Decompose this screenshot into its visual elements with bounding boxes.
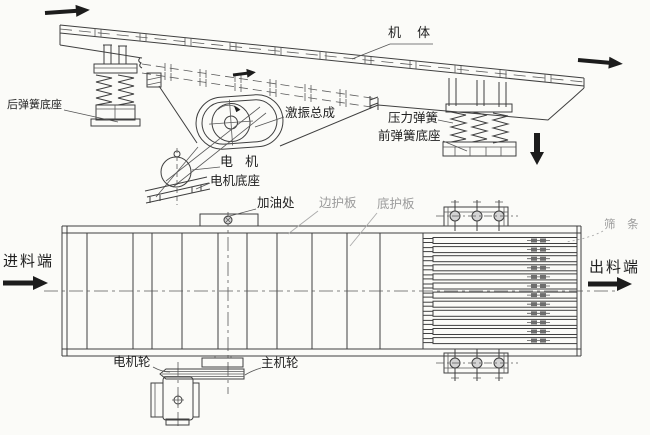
- feed-arrow-icon: [3, 276, 48, 290]
- front-spring-assembly: [443, 78, 516, 156]
- exciter-assembly: [194, 93, 284, 151]
- label-motor-base: 电机底座: [210, 174, 260, 188]
- flow-arrow-top-left-icon: [45, 4, 91, 19]
- label-exciter-assembly: 激振总成: [285, 106, 335, 120]
- label-oil-fill-point: 加油处: [257, 196, 295, 210]
- label-bottom-guard-plate: 底护板: [377, 197, 415, 211]
- screen-deck-rail: [142, 63, 378, 110]
- flow-arrow-top-right-icon: [577, 54, 623, 70]
- bolt-flange-bottom: [436, 349, 518, 381]
- down-arrow-icon: [530, 133, 544, 165]
- label-pressure-spring: 压力弹簧: [388, 111, 438, 125]
- label-front-spring-base: 前弹簧底座: [378, 129, 441, 143]
- discharge-arrow-icon: [588, 277, 632, 291]
- rear-spring-assembly: [91, 45, 140, 126]
- bolt-flange-top: [436, 200, 518, 231]
- drive-pulley-assembly: [160, 356, 244, 379]
- motor-plan-view: [151, 377, 199, 425]
- label-rear-spring-base: 后弹簧底座: [7, 99, 62, 111]
- motor-base-mount: [145, 177, 210, 203]
- label-feed-end: 进料端: [3, 253, 54, 270]
- label-machine-body: 机 体: [388, 27, 436, 41]
- label-main-pulley: 主机轮: [261, 356, 299, 370]
- label-screen-bars: 筛 条: [604, 218, 643, 231]
- label-motor-pulley: 电机轮: [113, 355, 151, 369]
- vibration-arrow-icon: [232, 68, 256, 80]
- label-motor: 电 机: [220, 156, 262, 170]
- vibrating-feeder-diagram: 机 体 后弹簧底座 激振总成 电 机 电机底座 压力弹簧 前弹簧底座 加油处 边…: [0, 0, 650, 435]
- diagram-canvas: [0, 0, 650, 435]
- label-discharge-end: 出料端: [589, 259, 640, 276]
- screen-bars: [423, 238, 577, 344]
- label-side-guard-plate: 边护板: [319, 196, 357, 210]
- exciter-cradle: [159, 86, 378, 146]
